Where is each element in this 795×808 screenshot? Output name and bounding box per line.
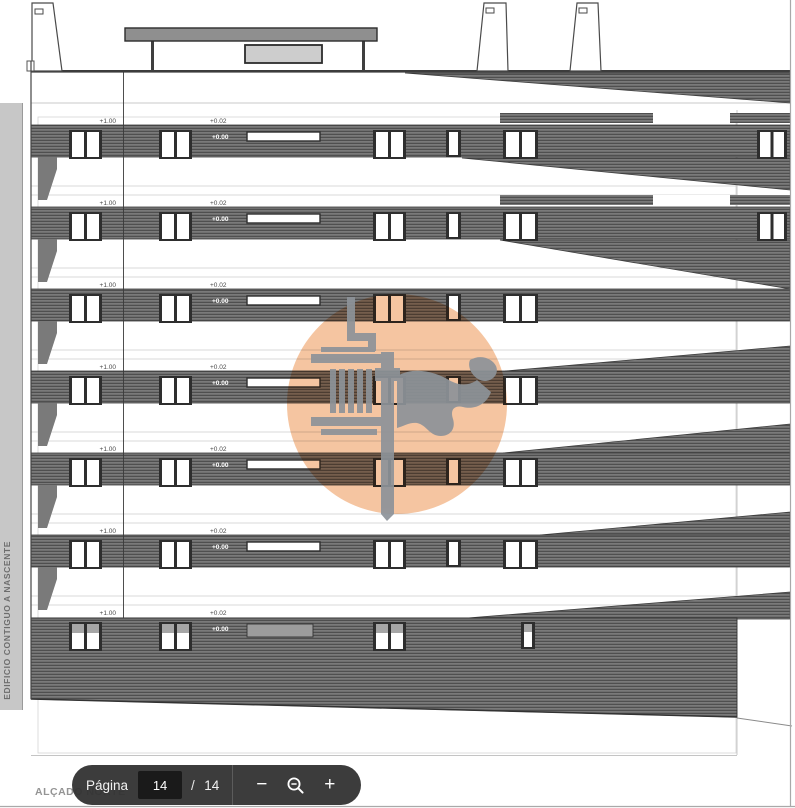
window-pane [774,214,785,239]
window-pane [391,542,403,567]
window-pane [177,460,189,485]
window-pane [522,378,535,403]
level-label: +0.00 [212,544,229,551]
window-pane [177,542,189,567]
level-label: +0.02 [210,446,227,453]
window-pane [177,296,189,321]
window-pane [506,132,519,157]
level-label: +0.00 [212,216,229,223]
level-label: +0.00 [212,380,229,387]
window-pane [760,214,771,239]
window-pane [506,542,519,567]
level-label: +0.02 [210,364,227,371]
parapet-strip [500,195,790,205]
window-pane [177,214,189,239]
parapet-gap [653,113,730,123]
level-label: +1.00 [100,200,117,207]
level-label: +0.02 [210,200,227,207]
letterbox-window [247,296,320,305]
level-label: +1.00 [100,528,117,535]
window-pane [87,460,99,485]
facade-shadow [38,321,57,364]
zoom-out-button[interactable]: − [245,765,279,805]
window-pane [72,460,84,485]
window-pane [87,132,99,157]
window-pane [72,542,84,567]
level-label: +0.02 [210,610,227,617]
window-pane [522,460,535,485]
window-pane [774,132,785,157]
adjacent-building-strip: EDIFICIO CONTIGUO A NASCENTE [0,103,23,710]
window-pane [72,378,84,403]
toolbar-divider [232,765,233,805]
pergola-post [151,41,154,71]
window-pane [522,214,535,239]
magnifier-icon [286,776,305,795]
level-label: +1.00 [100,610,117,617]
page-label: Página [86,778,128,793]
ground-floor-mass [31,618,792,726]
pergola-post [362,41,365,71]
window-pane [87,214,99,239]
pergola-beam [125,28,377,41]
window-pane [177,378,189,403]
page-total: 14 [204,778,220,793]
window-pane [87,296,99,321]
page-toolbar: Página / 14 − + [72,765,361,805]
window-pane [376,214,388,239]
chimney-vent [35,9,43,14]
window-pane [376,542,388,567]
level-label: +1.00 [100,446,117,453]
parapet-gap [653,195,730,205]
window-pane [506,296,519,321]
window-pane [72,214,84,239]
window-pane [449,542,458,565]
window-pane [506,378,519,403]
letterbox-window [247,132,320,141]
roof-wedge [405,73,790,103]
window-pane [72,296,84,321]
facade-shadow [38,239,57,282]
roof-slab-line [31,70,790,73]
window-pane [506,214,519,239]
floor-band [31,535,790,567]
window-pane [449,214,458,237]
letterbox-window [247,214,320,223]
floor-band [31,207,790,239]
window-pane [162,378,174,403]
adjacent-building-label: EDIFICIO CONTIGUO A NASCENTE [2,541,12,700]
facade-shadow [38,403,57,446]
page-separator: / [191,778,195,793]
facade-shadow [38,157,57,200]
window-pane [177,132,189,157]
level-label: +0.00 [212,134,229,141]
facade-shadow [38,567,57,610]
parapet-strip [500,113,790,123]
level-label: +0.02 [210,528,227,535]
floor-band [31,125,790,157]
window-pane [506,460,519,485]
window-pane [391,132,403,157]
zoom-magnifier-button[interactable] [279,765,313,805]
window-pane [760,132,771,157]
level-label: +0.00 [212,462,229,469]
window-pane [72,132,84,157]
window-pane [87,542,99,567]
level-label: +1.00 [100,364,117,371]
window-pane [449,132,458,155]
window-pane [162,460,174,485]
facade-shadow [38,485,57,528]
letterbox-window [247,624,313,637]
machine-room [245,45,322,63]
window-pane [162,132,174,157]
window-pane [522,296,535,321]
window-pane [391,214,403,239]
level-label: +0.02 [210,282,227,289]
elevation-drawing: +1.00+0.02+0.00+1.00+0.02+0.00+1.00+0.02… [0,0,795,808]
window-pane [87,378,99,403]
window-pane [376,132,388,157]
level-label: +0.00 [212,626,229,633]
level-label: +1.00 [100,282,117,289]
level-label: +0.02 [210,118,227,125]
window-pane [162,214,174,239]
pdf-page: +1.00+0.02+0.00+1.00+0.02+0.00+1.00+0.02… [0,0,795,808]
level-label: +1.00 [100,118,117,125]
window-pane [522,132,535,157]
page-number-input[interactable] [138,771,182,799]
watermark [287,294,507,521]
window-pane [162,542,174,567]
window-pane [522,542,535,567]
window-pane [162,296,174,321]
level-label: +0.00 [212,298,229,305]
letterbox-window [247,542,320,551]
zoom-in-button[interactable]: + [313,765,347,805]
